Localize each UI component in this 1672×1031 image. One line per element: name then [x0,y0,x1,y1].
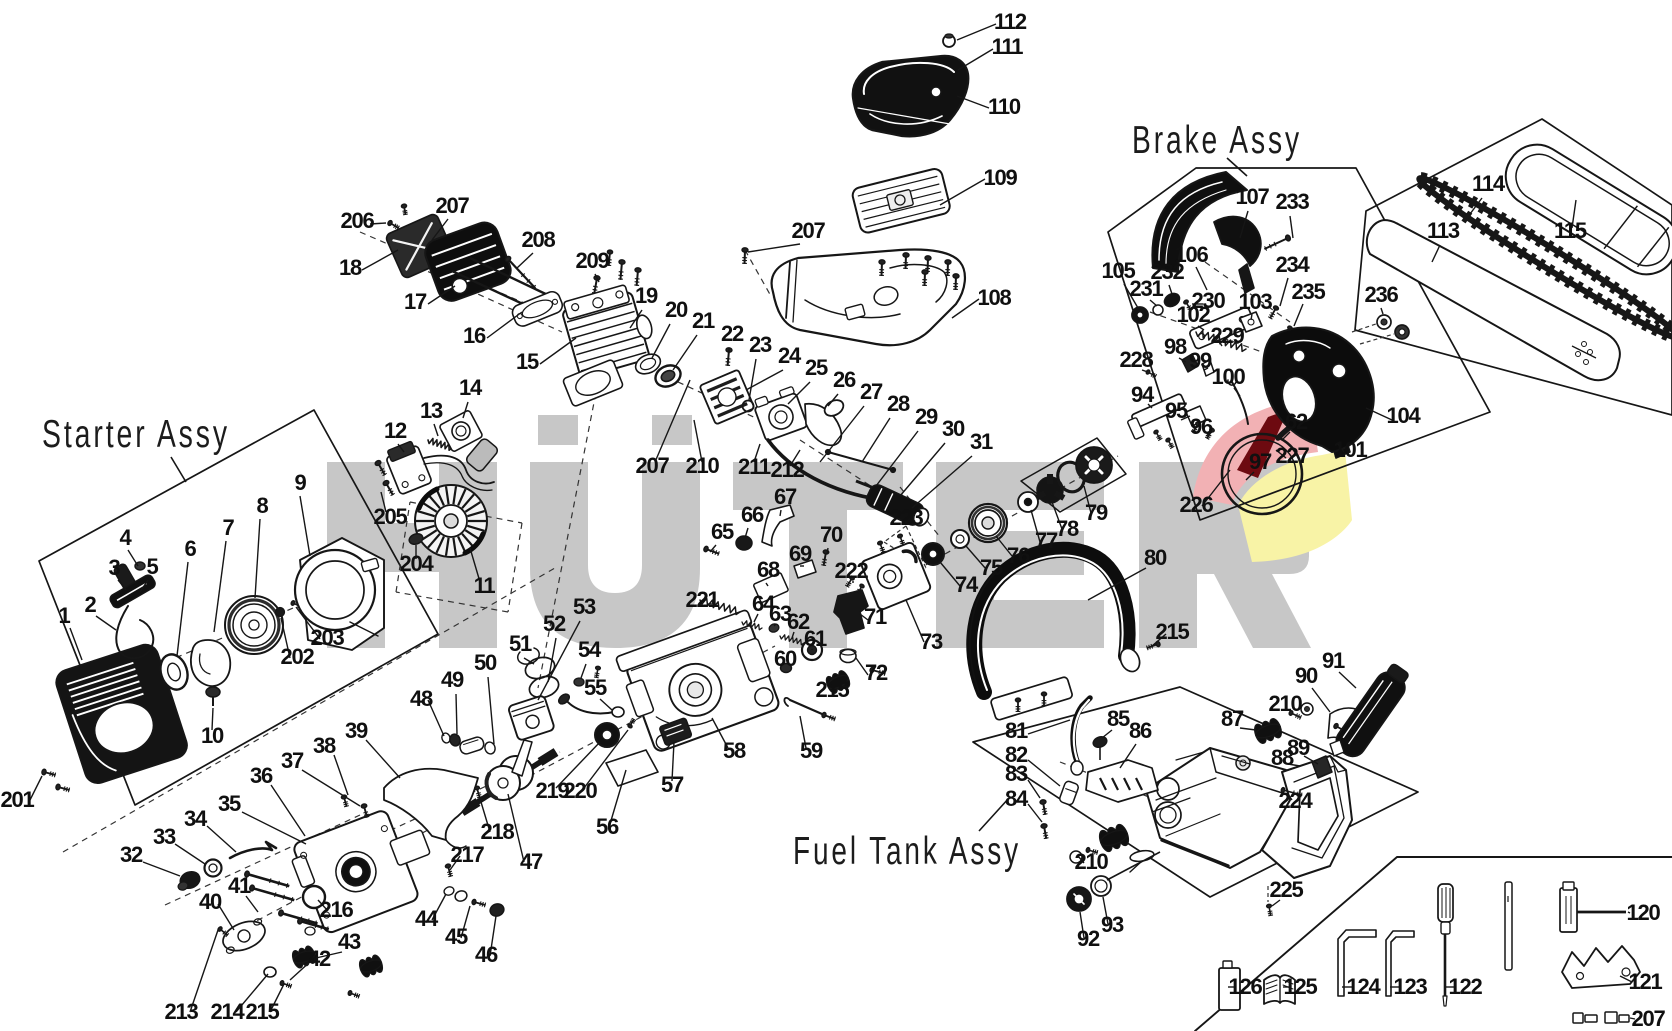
svg-text:106: 106 [1174,242,1208,267]
svg-text:225: 225 [1269,877,1303,902]
svg-text:6: 6 [184,536,196,561]
svg-text:210: 210 [1268,691,1302,716]
svg-text:108: 108 [977,285,1011,310]
svg-text:39: 39 [345,718,368,743]
svg-text:52: 52 [543,611,566,636]
svg-text:81: 81 [1005,718,1028,743]
svg-text:78: 78 [1056,516,1079,541]
svg-text:55: 55 [584,675,607,700]
svg-text:102: 102 [1176,302,1210,327]
svg-text:85: 85 [1107,706,1130,731]
svg-text:228: 228 [1119,347,1153,372]
svg-text:215: 215 [245,999,279,1024]
svg-text:20: 20 [665,297,688,322]
svg-text:46: 46 [475,942,498,967]
svg-text:227: 227 [1275,443,1309,468]
svg-text:114: 114 [1472,171,1506,196]
svg-text:226: 226 [1179,492,1213,517]
svg-text:229: 229 [1210,323,1244,348]
svg-text:217: 217 [450,842,484,867]
svg-text:94: 94 [1131,382,1155,407]
svg-text:35: 35 [218,791,241,816]
svg-text:38: 38 [313,733,336,758]
svg-text:51: 51 [509,631,532,656]
svg-text:28: 28 [887,391,910,416]
svg-text:83: 83 [1005,761,1028,786]
svg-text:71: 71 [864,604,887,629]
svg-text:91: 91 [1322,648,1345,673]
svg-text:210: 210 [685,453,719,478]
svg-text:68: 68 [757,557,780,582]
svg-text:60: 60 [774,646,797,671]
svg-text:40: 40 [199,889,222,914]
svg-text:59: 59 [800,738,823,763]
svg-text:212: 212 [770,457,804,482]
svg-text:30: 30 [942,416,965,441]
svg-text:5: 5 [146,554,158,579]
svg-text:66: 66 [741,502,764,527]
svg-text:113: 113 [1427,218,1460,243]
svg-text:65: 65 [711,519,734,544]
svg-text:86: 86 [1129,718,1152,743]
svg-text:57: 57 [661,772,684,797]
svg-text:17: 17 [404,289,427,314]
svg-text:126: 126 [1228,974,1262,999]
svg-text:47: 47 [520,849,543,874]
svg-text:214: 214 [210,999,245,1024]
svg-text:203: 203 [310,625,344,650]
svg-text:216: 216 [319,897,353,922]
svg-text:90: 90 [1295,663,1318,688]
svg-text:95: 95 [1165,398,1188,423]
svg-text:12: 12 [384,418,407,443]
svg-text:43: 43 [338,929,361,954]
svg-text:67: 67 [774,484,797,509]
svg-text:207: 207 [635,453,669,478]
svg-text:224: 224 [1278,788,1313,813]
svg-text:Starter Assy: Starter Assy [42,413,230,456]
svg-text:77: 77 [1035,528,1058,553]
svg-text:1: 1 [58,603,70,628]
svg-text:218: 218 [480,819,514,844]
svg-text:15: 15 [516,349,539,374]
svg-text:3: 3 [108,555,120,580]
svg-text:36: 36 [250,763,273,788]
svg-text:53: 53 [573,594,596,619]
svg-text:115: 115 [1554,218,1587,243]
svg-text:125: 125 [1283,974,1317,999]
svg-text:223: 223 [889,505,923,530]
svg-text:107: 107 [1235,184,1269,209]
svg-text:92: 92 [1077,926,1100,951]
svg-text:11: 11 [474,573,496,598]
svg-text:4: 4 [119,525,132,550]
svg-text:111: 111 [992,34,1024,59]
svg-text:73: 73 [920,629,943,654]
svg-text:24: 24 [778,343,802,368]
svg-text:61: 61 [804,626,827,651]
svg-text:79: 79 [1085,500,1108,525]
svg-text:8: 8 [256,493,268,518]
svg-text:222: 222 [834,558,868,583]
svg-text:21: 21 [692,308,715,333]
svg-text:204: 204 [399,551,434,576]
svg-text:37: 37 [281,748,304,773]
svg-text:72: 72 [865,660,888,685]
svg-text:220: 220 [563,778,597,803]
svg-text:100: 100 [1211,364,1245,389]
svg-text:18: 18 [339,255,362,280]
svg-text:34: 34 [184,806,208,831]
svg-text:9: 9 [294,470,306,495]
svg-text:23: 23 [749,332,772,357]
svg-text:10: 10 [201,723,224,748]
svg-text:207: 207 [791,218,825,243]
svg-text:32: 32 [120,842,143,867]
svg-text:121: 121 [1628,969,1662,994]
svg-text:27: 27 [860,379,883,404]
svg-text:49: 49 [441,667,464,692]
svg-text:109: 109 [983,165,1017,190]
svg-text:208: 208 [521,227,555,252]
svg-text:96: 96 [1190,414,1213,439]
svg-text:215: 215 [815,677,849,702]
svg-text:98: 98 [1164,334,1187,359]
svg-text:215: 215 [1155,619,1189,644]
svg-text:123: 123 [1393,974,1427,999]
svg-text:42: 42 [308,946,331,971]
svg-text:70: 70 [820,522,843,547]
svg-text:48: 48 [410,686,433,711]
svg-text:205: 205 [373,504,407,529]
svg-text:101: 101 [1333,437,1367,462]
svg-text:2: 2 [84,592,96,617]
svg-text:50: 50 [474,650,497,675]
svg-text:233: 233 [1275,189,1309,214]
svg-text:22: 22 [721,321,744,346]
svg-text:236: 236 [1364,282,1398,307]
svg-text:Brake Assy: Brake Assy [1132,119,1302,162]
svg-text:99: 99 [1189,348,1212,373]
svg-text:33: 33 [153,824,176,849]
svg-text:26: 26 [833,367,856,392]
svg-text:122: 122 [1448,974,1482,999]
svg-text:16: 16 [463,323,486,348]
svg-text:7: 7 [222,515,234,540]
svg-text:213: 213 [164,999,198,1024]
svg-text:87: 87 [1221,706,1244,731]
svg-text:41: 41 [228,873,251,898]
svg-text:69: 69 [789,541,812,566]
svg-text:44: 44 [415,906,439,931]
svg-text:209: 209 [575,248,609,273]
svg-text:80: 80 [1144,545,1167,570]
svg-text:13: 13 [420,398,443,423]
svg-text:202: 202 [280,644,314,669]
svg-text:110: 110 [988,94,1021,119]
svg-text:210: 210 [1074,849,1108,874]
svg-text:45: 45 [445,924,468,949]
svg-text:29: 29 [915,404,938,429]
svg-text:221: 221 [685,587,719,612]
svg-text:93: 93 [1101,912,1124,937]
svg-text:207: 207 [1631,1006,1665,1031]
svg-text:54: 54 [578,637,602,662]
svg-text:58: 58 [723,738,746,763]
svg-text:19: 19 [635,283,658,308]
svg-text:84: 84 [1005,786,1029,811]
svg-text:201: 201 [0,787,34,812]
svg-text:89: 89 [1287,735,1310,760]
svg-text:76: 76 [1007,543,1030,568]
svg-text:74: 74 [955,572,979,597]
svg-text:Fuel Tank Assy: Fuel Tank Assy [793,830,1021,873]
svg-text:104: 104 [1386,403,1421,428]
svg-text:103: 103 [1238,289,1272,314]
svg-text:75: 75 [980,555,1003,580]
svg-text:207: 207 [435,193,469,218]
svg-text:206: 206 [340,208,374,233]
svg-text:211: 211 [738,454,771,479]
svg-text:120: 120 [1626,900,1660,925]
svg-text:62: 62 [1285,409,1308,434]
svg-text:124: 124 [1346,974,1381,999]
svg-text:235: 235 [1291,279,1325,304]
svg-text:31: 31 [970,429,993,454]
svg-text:56: 56 [596,814,619,839]
svg-text:112: 112 [994,9,1027,34]
svg-text:25: 25 [805,355,828,380]
svg-text:234: 234 [1275,252,1310,277]
svg-text:14: 14 [459,375,483,400]
svg-text:97: 97 [1249,449,1272,474]
